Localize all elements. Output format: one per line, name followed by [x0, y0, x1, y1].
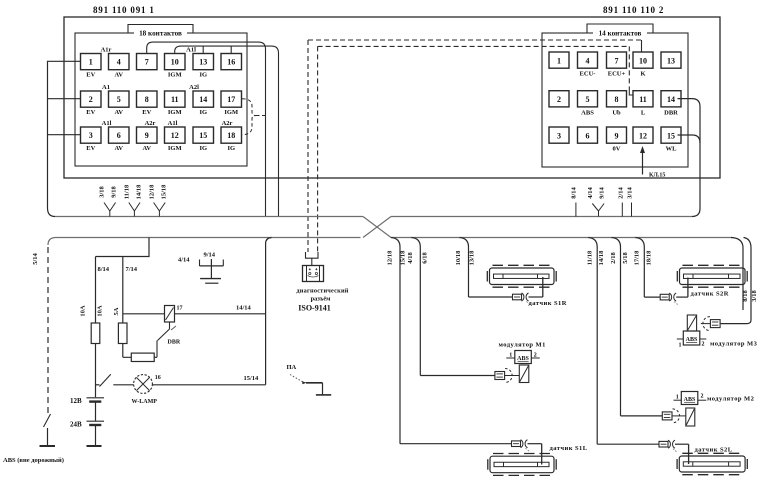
svg-text:891 110 091 1: 891 110 091 1: [93, 5, 155, 15]
svg-text:IGM: IGM: [168, 109, 182, 116]
svg-text:AV: AV: [114, 72, 123, 79]
svg-text:16: 16: [155, 375, 161, 381]
svg-text:диагностический: диагностический: [296, 288, 348, 295]
svg-text:12/18: 12/18: [148, 184, 155, 200]
svg-text:12: 12: [639, 132, 647, 141]
svg-text:15/18: 15/18: [400, 250, 407, 266]
svg-text:A1: A1: [102, 84, 110, 91]
svg-text:IG: IG: [227, 145, 235, 152]
svg-text:8/14: 8/14: [98, 266, 110, 273]
svg-text:10: 10: [639, 57, 647, 66]
svg-text:7: 7: [615, 57, 619, 66]
svg-text:1: 1: [557, 57, 561, 66]
svg-text:DBR: DBR: [664, 109, 678, 116]
svg-text:IG: IG: [199, 145, 207, 152]
svg-text:18 контактов: 18 контактов: [139, 30, 182, 38]
svg-text:24В: 24В: [70, 421, 82, 429]
svg-text:датчик S2L: датчик S2L: [695, 447, 733, 454]
svg-text:2/14: 2/14: [617, 186, 624, 198]
svg-text:2: 2: [534, 353, 537, 359]
svg-text:модулятор М3: модулятор М3: [710, 341, 758, 348]
svg-text:14/14: 14/14: [236, 305, 252, 312]
svg-text:датчик S2R: датчик S2R: [691, 291, 729, 298]
svg-text:11: 11: [171, 95, 179, 104]
svg-text:4: 4: [586, 57, 590, 66]
svg-text:AV: AV: [142, 145, 151, 152]
svg-text:15: 15: [667, 132, 675, 141]
svg-text:13: 13: [199, 58, 207, 67]
svg-text:10: 10: [171, 58, 179, 67]
svg-text:Ub: Ub: [612, 109, 621, 116]
svg-text:18/18: 18/18: [646, 250, 653, 266]
svg-text:A1l: A1l: [168, 120, 178, 127]
svg-text:КЛ.15: КЛ.15: [649, 173, 665, 179]
svg-text:13/18: 13/18: [469, 250, 476, 266]
svg-text:14 контактов: 14 контактов: [599, 30, 642, 38]
svg-text:датчик S1R: датчик S1R: [529, 300, 567, 307]
svg-text:10A: 10A: [79, 305, 86, 317]
svg-text:12: 12: [171, 131, 179, 140]
svg-text:6/18: 6/18: [422, 251, 429, 263]
svg-text:A2r: A2r: [222, 120, 233, 127]
svg-text:8: 8: [145, 95, 149, 104]
svg-text:9: 9: [145, 131, 149, 140]
svg-text:A2r: A2r: [145, 120, 156, 127]
svg-text:11: 11: [639, 95, 647, 104]
svg-text:1: 1: [89, 58, 93, 67]
svg-text:разъём: разъём: [311, 296, 332, 303]
svg-text:EV: EV: [86, 72, 95, 79]
svg-text:17: 17: [177, 306, 183, 312]
svg-text:IGM: IGM: [168, 72, 182, 79]
svg-text:12В: 12В: [70, 397, 82, 405]
svg-text:IGM: IGM: [224, 109, 238, 116]
svg-text:ECU+: ECU+: [608, 71, 626, 78]
svg-text:AV: AV: [114, 145, 123, 152]
svg-text:4/14: 4/14: [178, 257, 190, 264]
svg-text:3: 3: [89, 131, 93, 140]
svg-text:11/18: 11/18: [123, 184, 130, 199]
svg-text:18: 18: [227, 131, 235, 140]
svg-text:10A: 10A: [97, 305, 104, 317]
svg-text:4/14: 4/14: [587, 186, 594, 198]
svg-text:ABS: ABS: [686, 337, 698, 343]
svg-text:17: 17: [227, 95, 235, 104]
svg-text:5: 5: [586, 95, 590, 104]
svg-text:5A: 5A: [113, 307, 120, 315]
svg-text:0V: 0V: [613, 146, 621, 153]
svg-text:9/14: 9/14: [204, 252, 216, 259]
svg-text:ISO-9141: ISO-9141: [298, 304, 330, 313]
svg-text:1: 1: [509, 353, 512, 359]
svg-text:A1l: A1l: [186, 47, 196, 54]
svg-text:4: 4: [117, 58, 121, 67]
svg-text:16: 16: [227, 58, 235, 67]
svg-text:13: 13: [667, 57, 675, 66]
svg-text:ECU-: ECU-: [580, 71, 596, 78]
svg-text:модулятор М2: модулятор М2: [707, 396, 754, 403]
svg-text:8: 8: [615, 95, 619, 104]
svg-text:3: 3: [557, 132, 561, 141]
svg-text:IG: IG: [199, 72, 207, 79]
svg-text:A1l: A1l: [102, 120, 112, 127]
svg-text:7: 7: [145, 58, 149, 67]
svg-text:9/14: 9/14: [599, 186, 606, 198]
svg-text:ABS (вне дорожный): ABS (вне дорожный): [3, 457, 64, 464]
svg-text:3/14: 3/14: [627, 186, 634, 198]
svg-text:2: 2: [702, 342, 705, 348]
svg-text:14/18: 14/18: [135, 184, 142, 200]
svg-text:модулятор М1: модулятор М1: [499, 342, 546, 349]
svg-text:14: 14: [667, 95, 675, 104]
svg-text:ABS: ABS: [581, 109, 594, 116]
svg-text:8/14: 8/14: [571, 186, 578, 198]
svg-text:8/18: 8/18: [742, 289, 749, 301]
svg-text:датчик S1L: датчик S1L: [550, 445, 588, 452]
svg-text:15/14: 15/14: [244, 375, 260, 382]
svg-text:ПА: ПА: [287, 364, 297, 371]
svg-text:4/18: 4/18: [407, 251, 414, 263]
svg-text:5/14: 5/14: [32, 252, 39, 264]
svg-text:A2l: A2l: [189, 84, 199, 91]
svg-text:14: 14: [199, 95, 207, 104]
svg-text:11/18: 11/18: [586, 250, 593, 265]
svg-text:12/18: 12/18: [387, 250, 394, 266]
svg-text:IG: IG: [199, 109, 207, 116]
svg-text:IGM: IGM: [168, 145, 182, 152]
svg-text:EV: EV: [142, 109, 151, 116]
svg-text:7/14: 7/14: [126, 266, 138, 273]
svg-text:DBR: DBR: [168, 340, 181, 346]
svg-text:WL: WL: [666, 146, 678, 153]
svg-text:AV: AV: [114, 109, 123, 116]
svg-text:1: 1: [676, 395, 679, 401]
svg-text:3/18: 3/18: [98, 185, 105, 197]
svg-text:14/18: 14/18: [598, 250, 605, 266]
svg-text:2/18: 2/18: [610, 251, 617, 263]
svg-text:1: 1: [679, 343, 682, 349]
svg-text:5: 5: [117, 95, 121, 104]
svg-text:9/18: 9/18: [110, 185, 117, 197]
svg-text:9: 9: [615, 132, 619, 141]
svg-text:5/18: 5/18: [622, 251, 629, 263]
svg-text:EV: EV: [86, 145, 95, 152]
svg-text:W-LAMP: W-LAMP: [132, 399, 158, 405]
svg-text:15/18: 15/18: [160, 184, 167, 200]
svg-text:6: 6: [586, 132, 590, 141]
svg-text:EV: EV: [86, 109, 95, 116]
svg-text:891 110 110 2: 891 110 110 2: [603, 5, 664, 15]
svg-text:L: L: [641, 109, 646, 116]
svg-text:K: K: [640, 71, 645, 78]
svg-text:17/18: 17/18: [634, 250, 641, 266]
svg-text:2: 2: [557, 95, 561, 104]
svg-text:2: 2: [89, 95, 93, 104]
svg-text:2: 2: [701, 394, 704, 400]
svg-text:15: 15: [199, 131, 207, 140]
svg-text:6: 6: [117, 131, 121, 140]
svg-text:A1r: A1r: [101, 47, 112, 54]
svg-text:10/18: 10/18: [455, 250, 462, 266]
svg-text:3/18: 3/18: [751, 289, 758, 301]
